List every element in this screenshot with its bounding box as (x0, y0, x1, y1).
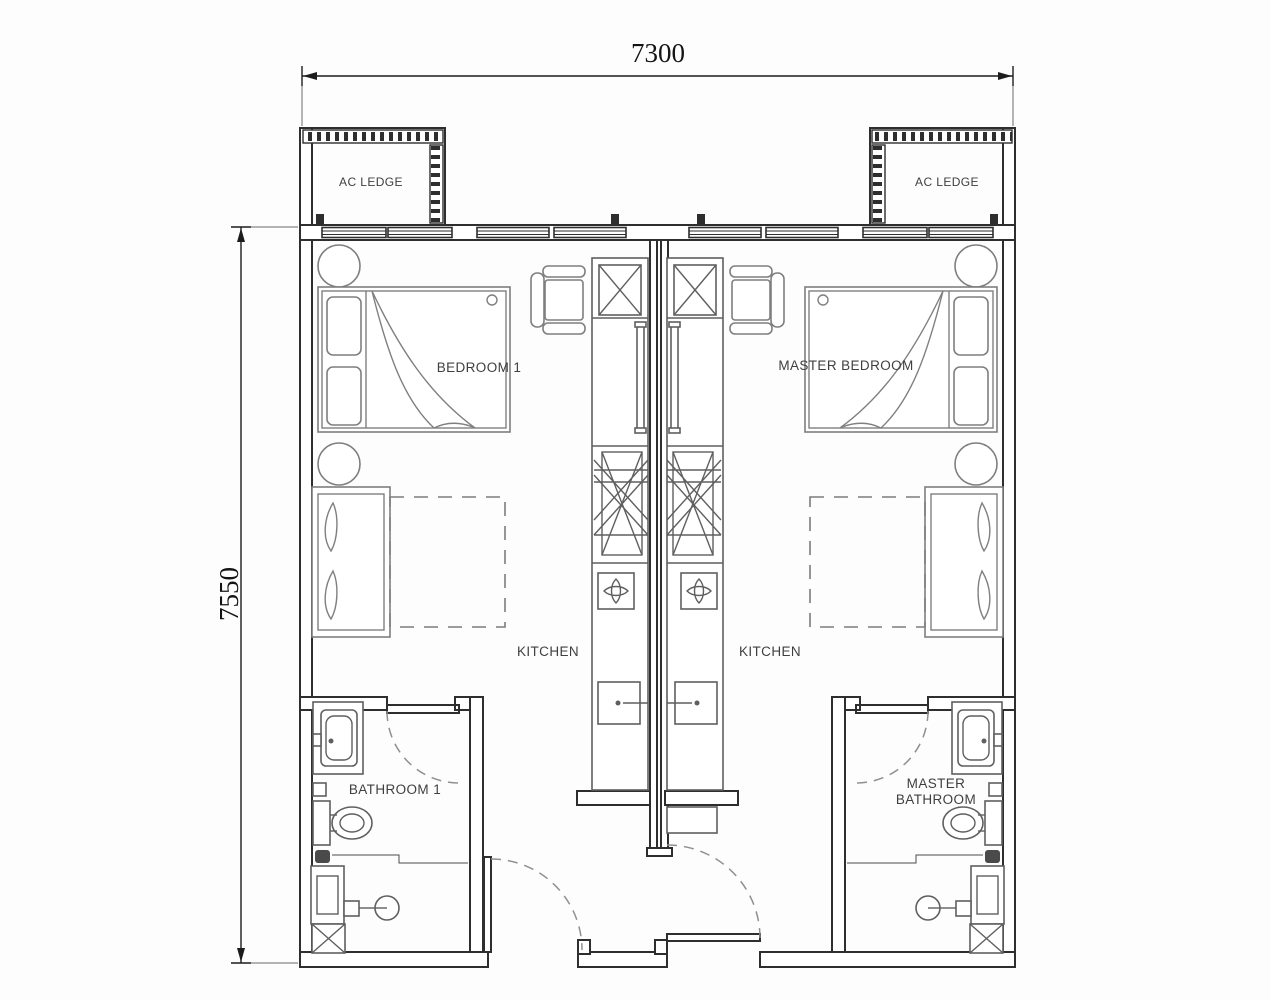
entry-door-right (667, 845, 760, 941)
wall-stub (989, 783, 1002, 796)
dimension-height-label: 7550 (214, 567, 244, 621)
toilet-bowl (332, 807, 372, 839)
chair-seat (545, 280, 583, 320)
shower (311, 855, 468, 953)
dimension-width-label: 7300 (631, 38, 685, 68)
wall-mark (611, 214, 619, 225)
tap-stub (313, 734, 321, 746)
bathroom1-label: BATHROOM 1 (349, 782, 441, 797)
kitchen-sink (667, 682, 717, 724)
window (929, 228, 993, 238)
chair-arm (730, 266, 772, 277)
bathroom1-door-swing (387, 711, 459, 783)
floor-trap (315, 850, 330, 863)
pillow (954, 367, 988, 425)
dimension-arrow (237, 948, 245, 962)
door-jamb (578, 940, 590, 954)
ac-ledge-right-label: AC LEDGE (915, 175, 979, 189)
desk-chair-left (531, 266, 585, 334)
master-bathroom-label-line1: MASTER (907, 776, 966, 791)
shower-valve (956, 901, 971, 916)
window (766, 228, 838, 238)
chair-back (531, 273, 544, 327)
shower-screen-line (847, 855, 983, 863)
desk-chair-right (730, 266, 784, 334)
dimension-arrow (237, 228, 245, 242)
window (388, 228, 452, 238)
bedroom1-label: BEDROOM 1 (437, 360, 522, 375)
ac-ledge-hatch-top (872, 130, 1012, 143)
pillow (327, 367, 361, 425)
window (554, 228, 626, 238)
master-bedroom-label: MASTER BEDROOM (778, 358, 913, 373)
bathroom1-side-wall (470, 697, 483, 952)
toilet (943, 801, 1002, 845)
pillow (954, 297, 988, 355)
bathroom1: BATHROOM 1 (311, 702, 468, 953)
ac-ledge-right: AC LEDGE (870, 128, 1015, 225)
tall-cabinet-door (637, 325, 644, 430)
chair-arm (730, 323, 772, 334)
wardrobe-dashed-zone (390, 497, 505, 627)
shower-valve (344, 901, 359, 916)
tap-stub (994, 734, 1002, 746)
stove (681, 573, 717, 609)
toilet-tank (985, 801, 1002, 845)
chair-back (771, 273, 784, 327)
bathroom-sink (952, 702, 1002, 774)
chair-seat (732, 280, 770, 320)
ac-ledge-hatch-side (430, 145, 443, 223)
right-wall (1003, 128, 1015, 967)
bottom-wall-segment (300, 952, 488, 967)
entry-door-left (484, 857, 582, 952)
cabinet-cap (669, 322, 680, 327)
toilet (313, 801, 372, 845)
shower-unit (971, 866, 1004, 924)
side-table (318, 245, 360, 287)
side-table (955, 245, 997, 287)
kitchen-right-label: KITCHEN (739, 644, 801, 659)
kitchen-return-wall-right (665, 791, 738, 805)
floor-plan-svg: 7300 7550 AC LEDGE AC LEDGE (0, 0, 1270, 1000)
bathroom1-door-leaf (387, 705, 459, 713)
shower-unit (311, 866, 344, 924)
chair-arm (543, 266, 585, 277)
floor-plan-canvas: 7300 7550 AC LEDGE AC LEDGE (0, 0, 1270, 1000)
floor-trap (985, 850, 1000, 863)
entry-door-leaf (667, 934, 760, 941)
faucet (329, 739, 334, 744)
dimension-top: 7300 (302, 38, 1013, 126)
shower (847, 855, 1004, 953)
master-bedroom: MASTER BEDROOM (778, 245, 997, 485)
shower-screen-line (332, 855, 468, 863)
side-table (955, 443, 997, 485)
party-wall-left-leaf (650, 240, 657, 848)
dimension-left: 7550 (214, 227, 298, 963)
sink-drain (616, 701, 621, 706)
ac-ledge-hatch-side (872, 145, 885, 223)
master-bathroom-door-swing (856, 711, 928, 783)
wardrobe-body (312, 487, 390, 637)
cabinet-cap (669, 428, 680, 433)
chair-arm (543, 323, 585, 334)
side-table (318, 443, 360, 485)
entry-door-leaf (484, 857, 491, 952)
window (863, 228, 927, 238)
wall-mark (990, 214, 998, 225)
ac-ledge-hatch-top (303, 130, 443, 143)
pillow (327, 297, 361, 355)
bottom-wall-segment (760, 952, 1015, 967)
master-bathroom-door-leaf (856, 705, 928, 713)
door-jamb (655, 940, 667, 954)
bottom-wall-segment (578, 952, 667, 967)
master-bathroom: MASTER BATHROOM (847, 702, 1004, 953)
bathroom-sink (313, 702, 363, 774)
master-bathroom-label-line2: BATHROOM (896, 792, 976, 807)
dimension-arrow (998, 72, 1012, 80)
faucet (982, 739, 987, 744)
master-bathroom-side-wall (832, 697, 845, 952)
window (322, 228, 386, 238)
ac-ledge-left-label: AC LEDGE (339, 175, 403, 189)
wardrobe-right (810, 487, 1003, 637)
wardrobe-left (312, 487, 505, 637)
left-wall (300, 128, 312, 967)
window (689, 228, 761, 238)
kitchen-left-label: KITCHEN (517, 644, 579, 659)
kitchen-counter-return (667, 807, 717, 833)
kitchen-left: KITCHEN (517, 258, 648, 790)
wall-mark (697, 214, 705, 225)
toilet-tank (313, 801, 330, 845)
dimension-arrow (303, 72, 317, 80)
kitchen-sink (598, 682, 648, 724)
window (477, 228, 549, 238)
party-wall-foot (647, 848, 672, 856)
cabinet-cap (635, 322, 646, 327)
wardrobe-body (925, 487, 1003, 637)
wall-stub (313, 783, 326, 796)
cabinet-cap (635, 428, 646, 433)
wall-mark (316, 214, 324, 225)
stove (598, 573, 634, 609)
ac-ledge-left: AC LEDGE (300, 128, 445, 225)
bedroom1: BEDROOM 1 (318, 245, 521, 485)
entry-door-swing (491, 859, 582, 950)
kitchen-return-wall-left (577, 791, 650, 805)
kitchen-right: KITCHEN (667, 258, 801, 790)
toilet-bowl (943, 807, 983, 839)
tall-cabinet-door (671, 325, 678, 430)
sink-drain (695, 701, 700, 706)
entry-door-swing (667, 845, 760, 938)
wardrobe-dashed-zone (810, 497, 925, 627)
